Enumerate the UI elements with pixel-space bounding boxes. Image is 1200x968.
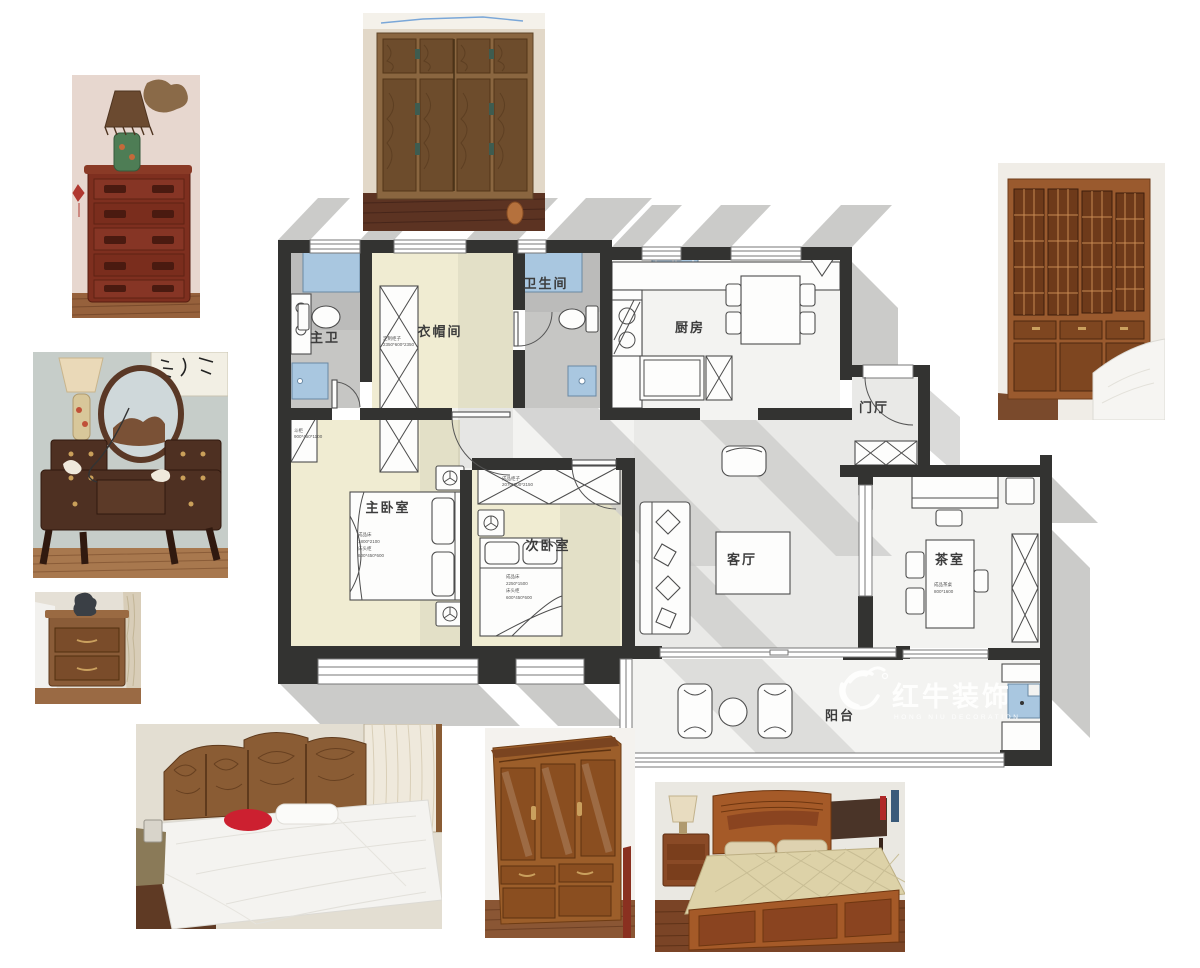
photo-nightstand xyxy=(35,592,141,704)
glossy-wardrobe xyxy=(491,736,621,924)
window xyxy=(731,247,801,260)
window xyxy=(518,240,546,253)
gourd-ornament xyxy=(507,202,523,224)
foyer-cabinet xyxy=(855,441,917,465)
watermark-cn: 红牛装饰 xyxy=(892,681,1012,712)
window xyxy=(642,247,681,260)
photo-wooden-bed xyxy=(655,782,905,952)
tea-room-furniture xyxy=(906,476,1038,642)
tea-balcony-slide xyxy=(903,650,988,658)
photo-lattice-wardrobe xyxy=(998,163,1165,420)
room-label-second-bedroom: 次卧室 xyxy=(525,538,570,553)
red-wall-object xyxy=(880,796,886,820)
room-label-cloakroom: 衣帽间 xyxy=(417,324,462,339)
photo-vanity-with-mirror xyxy=(33,352,228,578)
moodboard-canvas: 主卫 衣帽间 卫生间 厨房 门厅 主卧室 次卧室 客厅 茶室 阳台 斗柜 900… xyxy=(0,0,1200,968)
balcony-sliding-door xyxy=(660,648,896,657)
photo-chest-with-lamp xyxy=(72,75,200,318)
watermark-en: HONG NIU DECORATION xyxy=(894,714,1021,721)
photo-carved-wardrobe-tall xyxy=(363,13,545,231)
room-label-master-bath: 主卫 xyxy=(310,330,340,345)
red-frame-edge xyxy=(623,846,631,938)
photo-glossy-wardrobe xyxy=(485,728,635,938)
white-pillow xyxy=(276,804,338,824)
tea-room-window xyxy=(859,485,872,596)
bay-window xyxy=(516,659,584,684)
blue-wall-object xyxy=(891,790,899,822)
red-pillow xyxy=(224,809,272,831)
room-label-living-room: 客厅 xyxy=(727,552,757,567)
bedside-bag xyxy=(136,820,166,886)
room-label-kitchen: 厨房 xyxy=(675,320,705,335)
window xyxy=(310,240,360,253)
window xyxy=(394,240,466,253)
cloakroom-wardrobe xyxy=(380,286,418,472)
chest-of-drawers xyxy=(84,165,192,302)
nightstand xyxy=(45,610,129,686)
carved-wardrobe xyxy=(377,33,533,199)
room-label-master-bedroom: 主卧室 xyxy=(365,500,410,515)
balcony-rail-bottom xyxy=(632,753,1004,767)
room-label-tea-room: 茶室 xyxy=(935,552,965,567)
bay-window xyxy=(318,659,478,684)
room-label-foyer: 门厅 xyxy=(859,400,889,415)
entry-door-threshold xyxy=(863,365,913,378)
room-label-bathroom: 卫生间 xyxy=(523,276,568,291)
room-label-balcony: 阳台 xyxy=(825,708,855,723)
photo-bed-carved-headboard xyxy=(136,724,442,929)
